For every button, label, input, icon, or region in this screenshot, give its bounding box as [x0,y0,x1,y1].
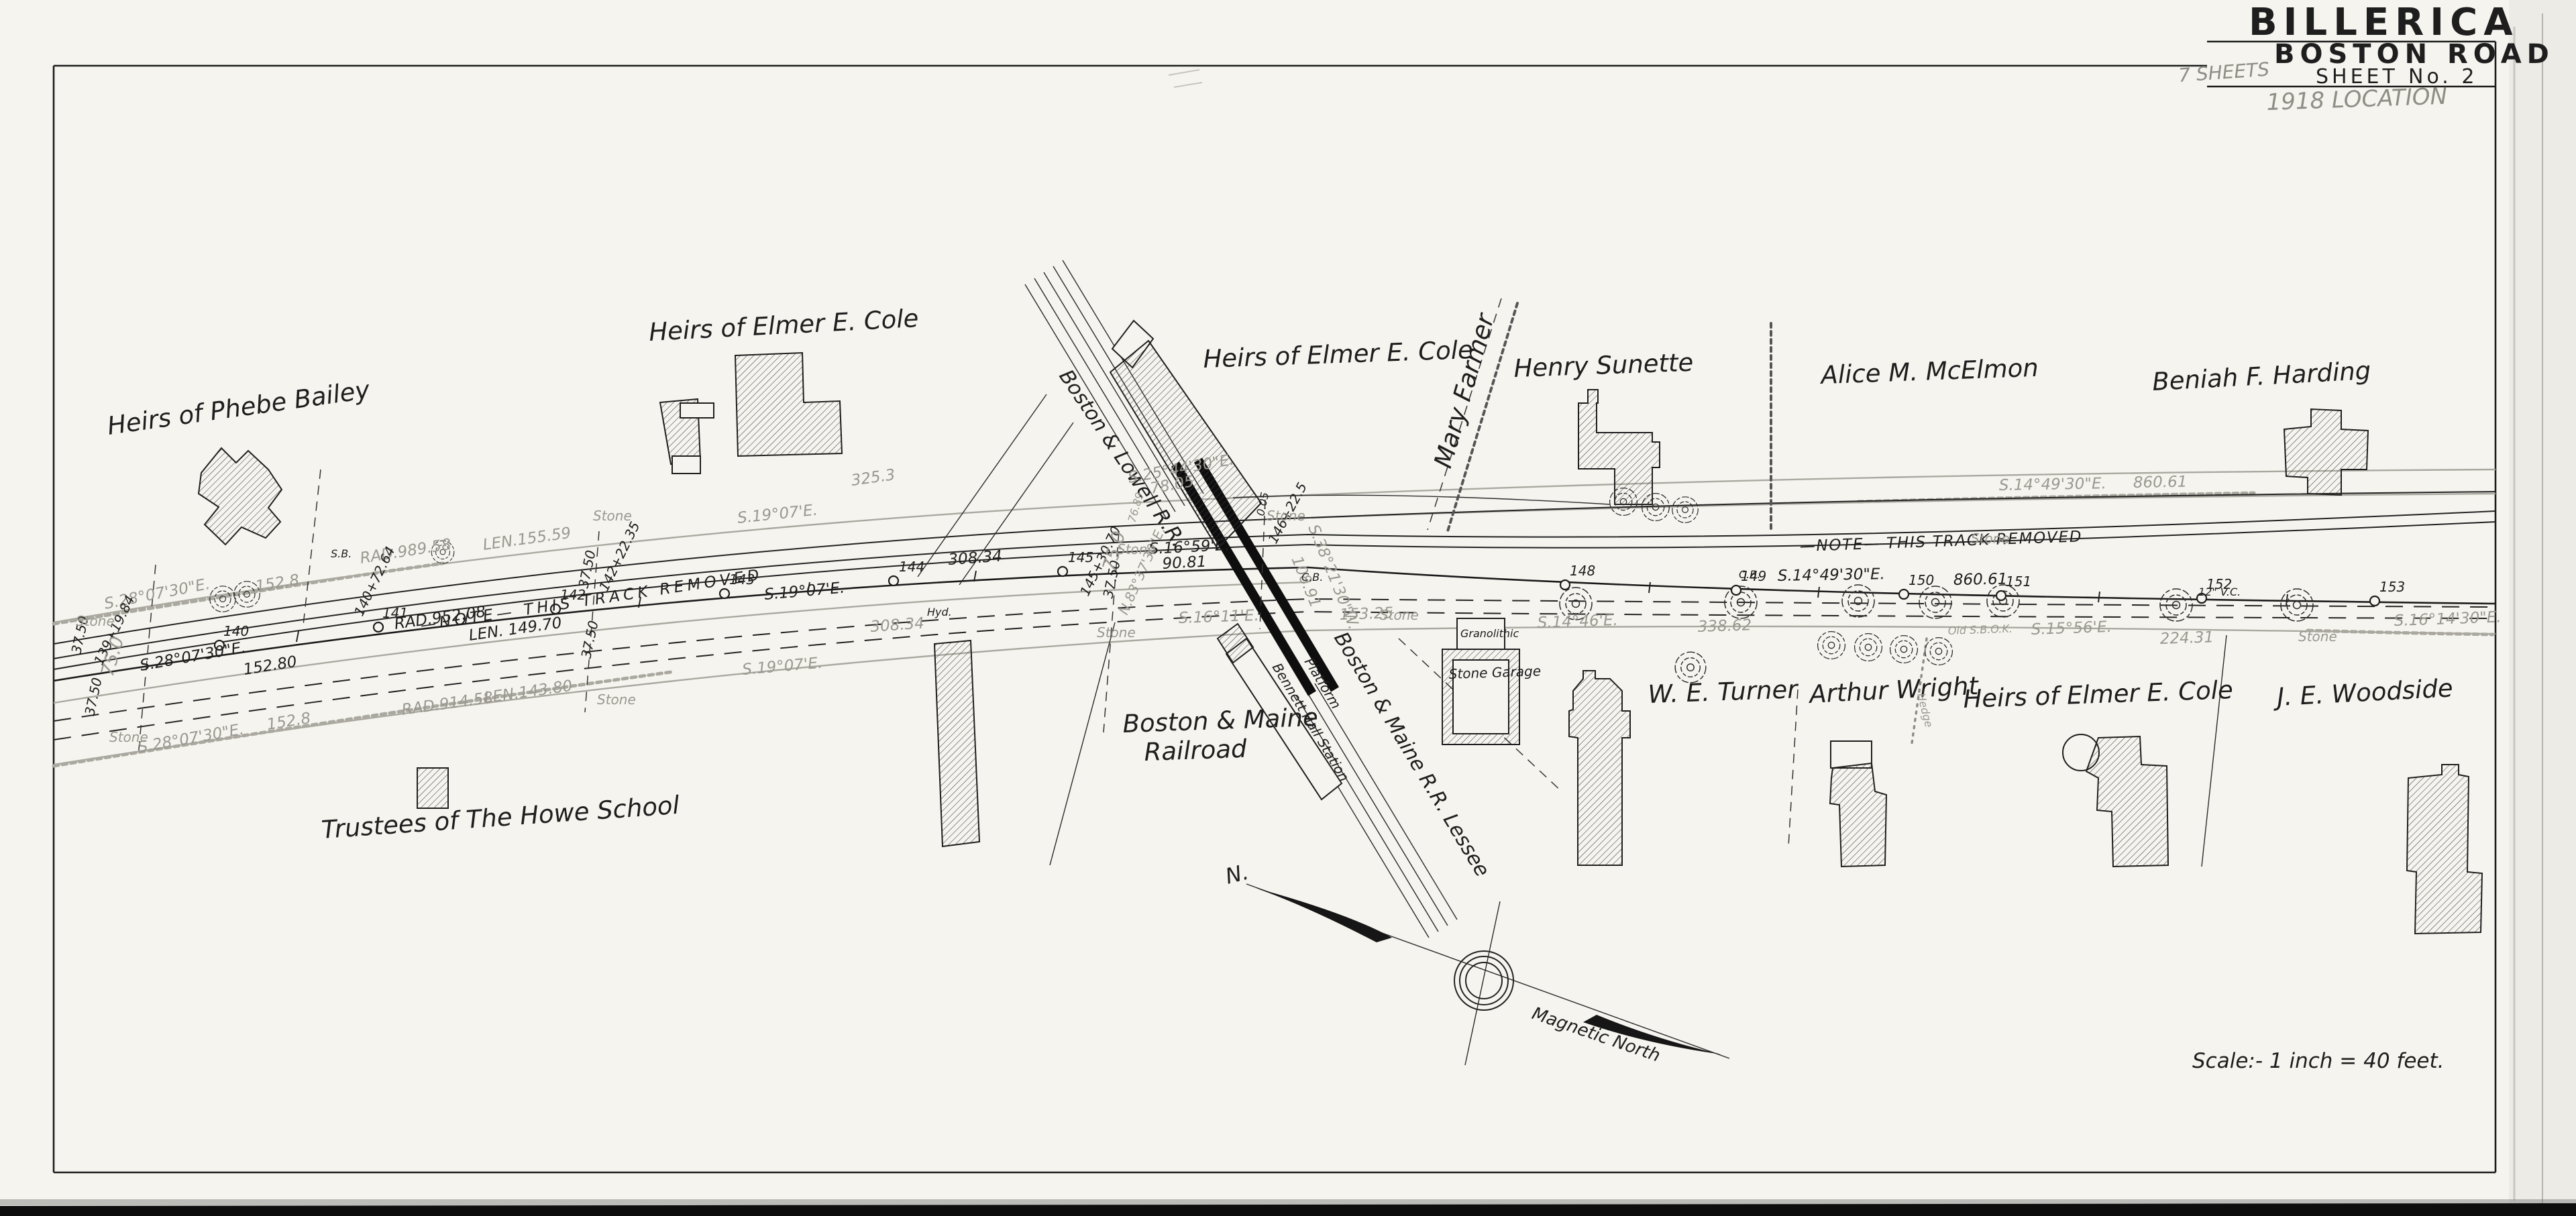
dist-860-black: 860.61 [1953,571,2008,589]
stone-label: Stone [593,508,632,524]
station-142: 142 [560,587,586,603]
bearing-s28-grey-bottom: S.28°07'30"E. [137,721,246,757]
sunette-house [1578,390,1660,504]
cole-west-porch-bottom [672,456,700,474]
dist-90-81: 90.81 [1162,553,1207,573]
bearing-s14-46: S.14°46'E. [1537,612,1618,632]
offset-37-d: 37.50 [578,619,601,660]
stone-label: Stone [1267,508,1305,524]
bearing-s14-49-grey: S.14°49'30"E. [1999,475,2106,494]
bearing-s15-56: S.15°56'E. [2031,618,2112,639]
station-149: 149 [1741,568,1766,584]
wright-house [1830,763,1886,867]
dist-152-8-bottom: 152.8 [266,710,312,734]
radius-914: RAD.914.58 [400,689,494,719]
offset-37-b: 37.50 [81,676,105,717]
bailey-cole-boundary [303,469,321,625]
owner-label-elmer-cole-west: Heirs of Elmer E. Cole [648,304,919,347]
stone-label: Stone [1117,541,1156,557]
owner-label-je-woodside: J. E. Woodside [2271,673,2453,712]
station-148: 148 [1570,563,1595,579]
scale-note: Scale:- 1 inch = 40 feet. [2192,1049,2444,1073]
marker-cb-1: C.B. [1301,571,1323,584]
dist-308-grey: 308.34 [870,614,925,636]
cole-east-house [2086,736,2168,867]
bearing-s28-black: S.28°07'30"E. [139,639,248,675]
owner-label-alice-mcelmon: Alice M. McElmon [1819,353,2039,390]
pencil-location-note: 1918 LOCATION [2266,83,2448,116]
howe-school-shed [417,768,448,808]
owner-label-beniah-harding: Beniah F. Harding [2151,356,2371,396]
dist-338-62: 338.62 [1697,616,1752,636]
rr-west-boundary [1050,622,1115,865]
bearing-s19-grey-bottom: S.19°07'E. [741,655,823,679]
station-143: 143 [729,571,755,588]
marker-hydrant: Hyd. [927,606,952,618]
owner-label-arthur-wright: Arthur Wright [1807,671,1980,709]
plan-drawing: BILLERICA BOSTON ROAD SHEET No. 2 7 SHEE… [0,0,2576,1216]
bailey-house [199,448,282,545]
station-151: 151 [2006,573,2031,590]
pencil-sheet-count: 7 SHEETS [2178,58,2270,87]
woodside-house [2407,765,2482,934]
sheet-border [54,42,2495,1172]
bearing-s19-grey-top: S.19°07'E. [737,502,818,527]
pencil-scribble [1169,70,1202,87]
compass-needle-wing-nw [1256,888,1392,942]
cole-west-porch-top [680,403,714,418]
stone-label: Stone [1097,624,1136,641]
bearing-s16-14: S.16°14'30"E. [2394,608,2502,630]
long-narrow-building [934,641,979,846]
label-boston-maine-line2: Railroad [1144,734,1248,767]
bearing-s16-11: S.16°11'E. [1178,607,1259,627]
compass-cross-line [1465,901,1500,1065]
survey-sheet: BILLERICA BOSTON ROAD SHEET No. 2 7 SHEE… [0,0,2576,1216]
stone-label: Stone [2298,628,2337,645]
station-140: 140 [223,623,249,639]
sta-142-22: 142+22.35 [596,519,643,594]
length-143: LEN.143.80 [483,677,574,707]
cole-west-l-house [735,353,842,456]
title-block: BILLERICA BOSTON ROAD SHEET No. 2 7 SHEE… [2178,1,2555,116]
station-144: 144 [899,559,924,575]
station-153: 153 [2379,579,2405,595]
stone-label: Stone [1380,607,1419,623]
stone-label: Stone [1971,531,2010,547]
station-141: 141 [382,605,408,621]
bearing-s14-49-black: S.14°49'30"E. [1778,565,1885,585]
dist-308-black: 308.34 [948,547,1003,569]
stone-label: Stone [109,729,148,745]
station-150: 150 [1909,572,1934,588]
compass-rose: N. Magnetic North [1223,859,1729,1066]
label-granolithic: Granolithic [1460,627,1519,640]
stone-label: Stone [597,692,636,708]
dist-325: 325.3 [850,466,896,490]
note-old-sb-ok: Old S.B.O.K. [1947,622,2012,637]
dist-224-31: 224.31 [2159,628,2214,648]
station-145: 145 [1068,549,1093,565]
harding-house [2284,409,2368,495]
bearing-s19-black: S.19°07'E. [763,579,845,604]
owner-label-henry-sunette: Henry Sunette [1513,348,1694,383]
marker-sb: S.B. [331,547,352,560]
cole-woodside-boundary [2202,635,2226,867]
dist-152-8-top: 152.8 [254,571,301,596]
dist-152-80: 152.80 [242,653,299,679]
owner-label-trustees-howe: Trustees of The Howe School [321,791,681,844]
owner-label-we-turner: W. E. Turner [1648,675,1800,709]
owner-label-elmer-cole-center: Heirs of Elmer E. Cole [1203,335,1474,374]
compass-north-label: N. [1223,859,1251,889]
stone-label: Stone [76,613,115,629]
label-stone-garage: Stone Garage [1448,663,1541,682]
owner-label-phebe-bailey: Heirs of Phebe Bailey [105,375,372,441]
sheet-town-title: BILLERICA [2249,1,2519,44]
owner-label-elmer-cole-east: Heirs of Elmer E. Cole [1963,675,2234,714]
dist-860-grey: 860.61 [2133,474,2188,492]
station-152: 152 [2206,576,2232,592]
turner-wright-boundary [1788,689,1798,846]
old-location-line-right [1311,494,2495,518]
turner-house [1569,671,1630,865]
